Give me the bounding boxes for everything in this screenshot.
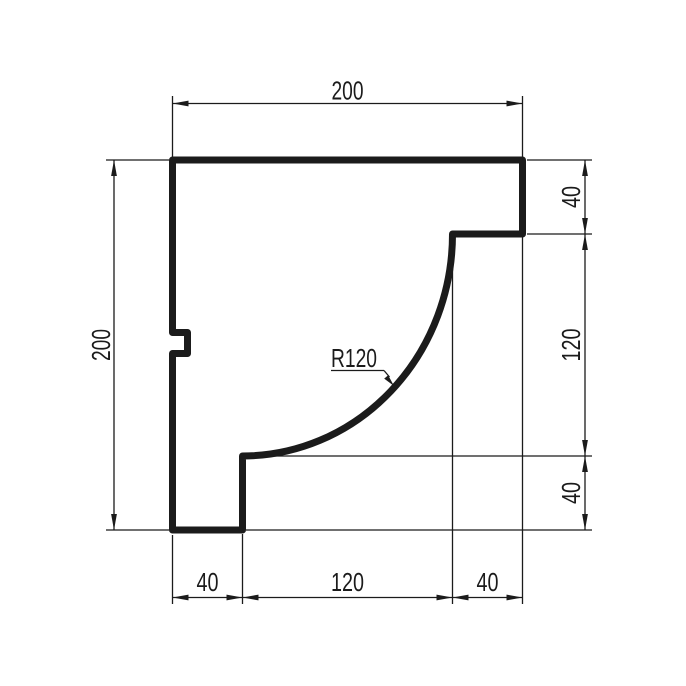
arrowhead-left-icon (173, 101, 189, 107)
arrowhead-down-icon (111, 514, 117, 530)
dimension-label-right-40-bottom: 40 (556, 482, 586, 504)
arrowhead-left-icon (243, 595, 259, 601)
arrowhead-down-icon (582, 218, 588, 234)
arrowhead-right-icon (507, 101, 523, 107)
leader-line (384, 371, 390, 378)
arrowhead-down-icon (582, 514, 588, 530)
dimension-right: 40 120 40 (245, 160, 592, 530)
dimension-left: 200 (86, 160, 169, 530)
arrowhead-up-icon (582, 234, 588, 250)
dimension-bottom: 40 120 40 (173, 236, 523, 604)
arrowhead-right-icon (507, 595, 523, 601)
arrowhead-right-icon (437, 595, 453, 601)
arrowhead-up-icon (111, 160, 117, 176)
dimension-label-left: 200 (86, 329, 116, 361)
arrowhead-down-icon (582, 440, 588, 456)
dimension-label-bottom-40-left: 40 (197, 567, 219, 597)
arrowhead-up-icon (582, 160, 588, 176)
dimension-top: 200 (173, 76, 523, 164)
technical-drawing-canvas: 200 200 40 120 40 (0, 0, 686, 686)
radius-label: R120 (331, 343, 377, 373)
dimension-label-right-120: 120 (556, 329, 586, 362)
dimension-label-bottom-40-right: 40 (477, 567, 499, 597)
dimension-label-top: 200 (332, 76, 364, 106)
arrowhead-right-icon (227, 595, 243, 601)
arrowhead-up-icon (582, 456, 588, 472)
dimension-label-right-40-top: 40 (556, 186, 586, 208)
arrowhead-left-icon (173, 595, 189, 601)
radius-callout: R120 (331, 343, 394, 386)
dimension-label-bottom-120: 120 (331, 567, 364, 597)
arrowhead-left-icon (453, 595, 469, 601)
